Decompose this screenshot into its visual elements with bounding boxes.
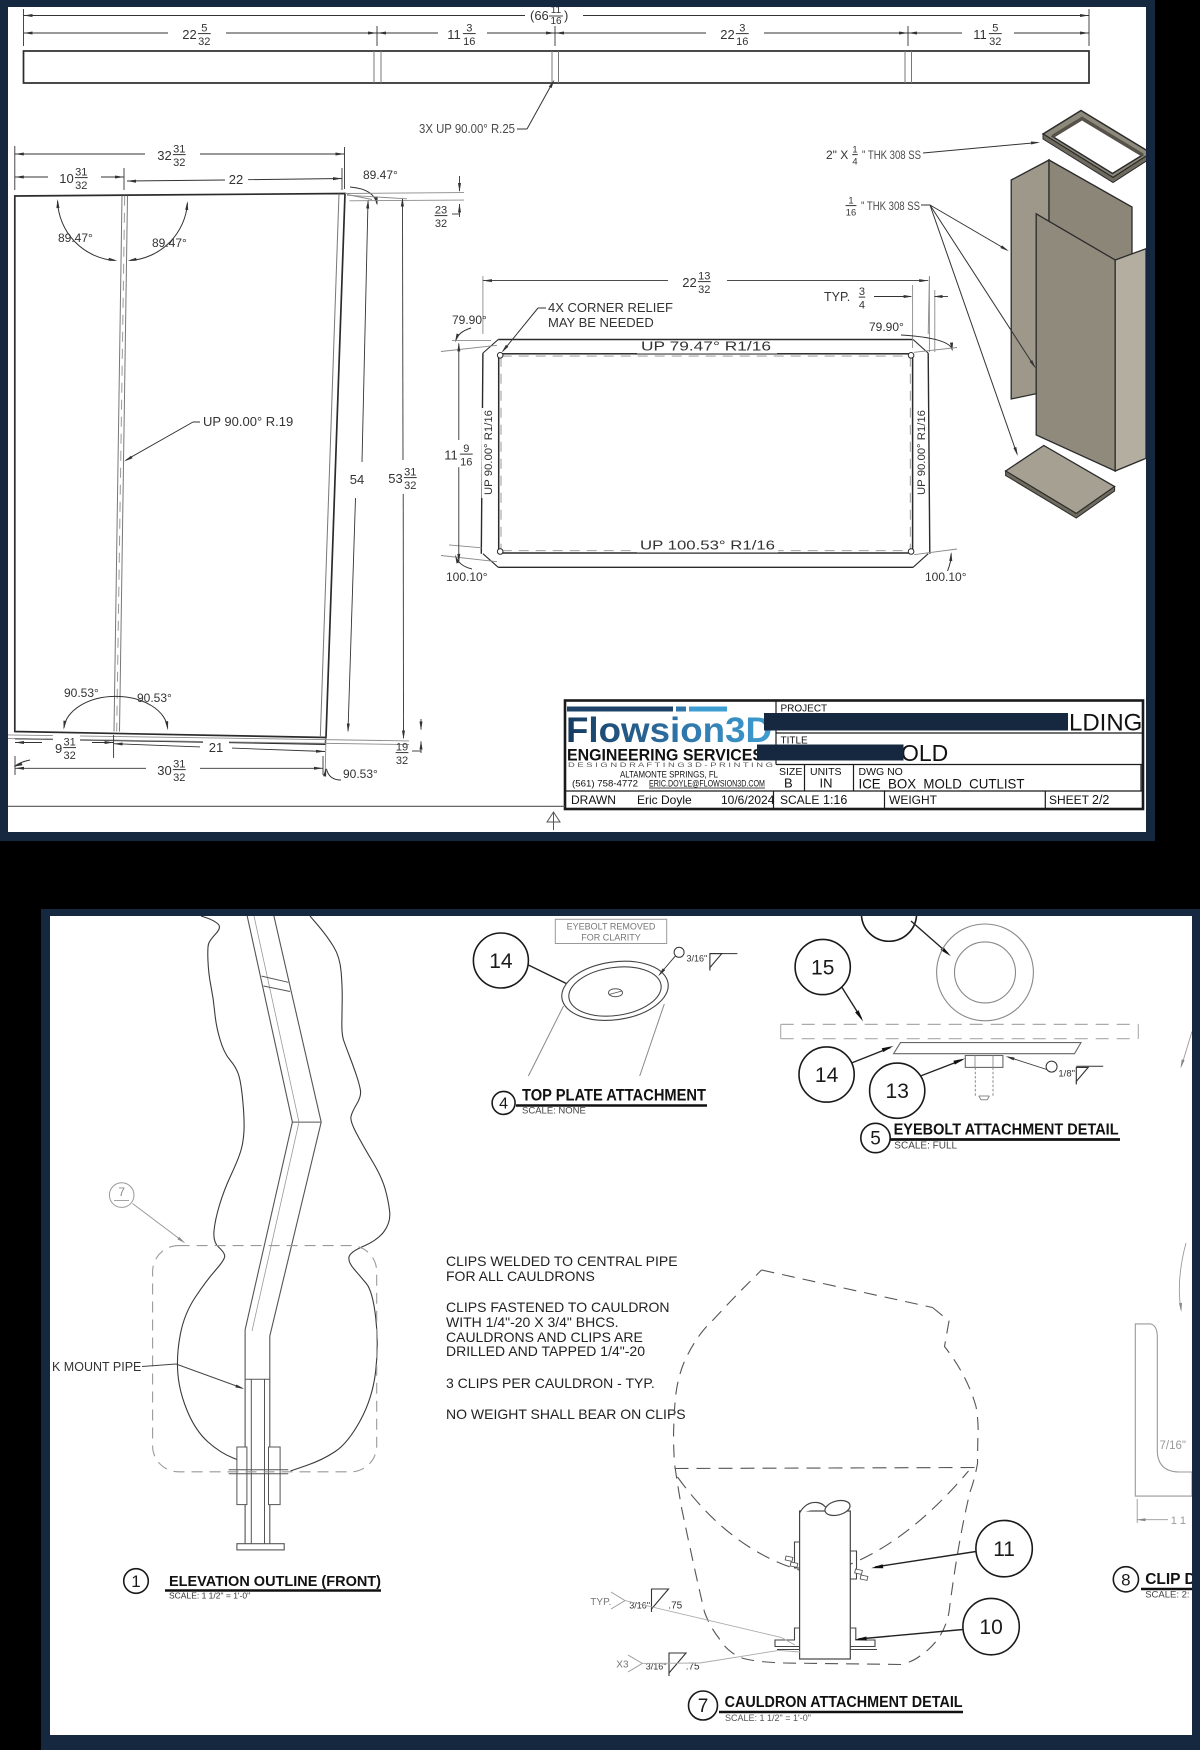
svg-text:31: 31 <box>404 467 416 479</box>
svg-text:16: 16 <box>550 16 562 27</box>
svg-text:3 CLIPS PER CAULDRON - TYP.: 3 CLIPS PER CAULDRON - TYP. <box>446 1375 655 1391</box>
svg-text:3: 3 <box>466 23 472 35</box>
svg-text:TYP.: TYP. <box>590 1597 611 1608</box>
svg-text:13: 13 <box>698 271 710 283</box>
svg-text:32: 32 <box>404 480 416 492</box>
svg-text:IN: IN <box>820 776 833 791</box>
svg-text:5: 5 <box>992 23 998 35</box>
svg-text:22: 22 <box>720 27 734 42</box>
svg-text:90.53°: 90.53° <box>343 767 378 781</box>
svg-text:14: 14 <box>815 1064 839 1087</box>
svg-text:31: 31 <box>63 737 75 749</box>
svg-text:TOP PLATE ATTACHMENT: TOP PLATE ATTACHMENT <box>522 1087 706 1105</box>
svg-text:11: 11 <box>973 27 987 42</box>
svg-text:): ) <box>564 8 568 23</box>
svg-text:UP 100.53° R1/16: UP 100.53° R1/16 <box>640 539 775 553</box>
svg-text:22: 22 <box>229 172 243 187</box>
svg-text:79.90°: 79.90° <box>869 320 904 334</box>
svg-text:11: 11 <box>447 27 461 42</box>
svg-text:CAULDRON ATTACHMENT DETAIL: CAULDRON ATTACHMENT DETAIL <box>725 1694 963 1711</box>
svg-text:4: 4 <box>852 156 857 166</box>
svg-text:10: 10 <box>979 1616 1002 1639</box>
svg-text:4: 4 <box>859 300 865 312</box>
svg-text:30: 30 <box>157 763 171 778</box>
svg-text:UP 79.47° R1/16: UP 79.47° R1/16 <box>641 340 771 354</box>
svg-text:23: 23 <box>435 205 447 217</box>
svg-text:K MOUNT PIPE: K MOUNT PIPE <box>52 1360 141 1374</box>
svg-text:13: 13 <box>886 1080 909 1103</box>
svg-text:89.47°: 89.47° <box>363 168 398 182</box>
svg-text:B: B <box>784 776 793 791</box>
svg-text:2/2: 2/2 <box>1092 793 1109 807</box>
svg-text:32: 32 <box>198 36 210 48</box>
svg-text:CLIP D: CLIP D <box>1145 1571 1196 1588</box>
svg-text:1 1: 1 1 <box>1171 1515 1186 1527</box>
svg-text:79.90°: 79.90° <box>452 313 487 327</box>
svg-text:32: 32 <box>989 36 1001 48</box>
svg-text:DRAWN: DRAWN <box>571 793 616 807</box>
svg-text:7: 7 <box>698 1696 709 1717</box>
svg-text:14: 14 <box>489 950 513 973</box>
svg-text:SCALE: FULL: SCALE: FULL <box>894 1141 957 1152</box>
svg-text:5: 5 <box>870 1129 881 1150</box>
svg-text:19: 19 <box>396 742 408 754</box>
svg-text:UP 90.00° R1/16: UP 90.00° R1/16 <box>483 410 495 495</box>
svg-text:32: 32 <box>75 180 87 192</box>
svg-text:32: 32 <box>173 157 185 169</box>
svg-text:WEIGHT: WEIGHT <box>889 793 938 807</box>
svg-text:22: 22 <box>682 275 696 290</box>
svg-text:NO WEIGHT SHALL BEAR ON CLIPS: NO WEIGHT SHALL BEAR ON CLIPS <box>446 1406 686 1422</box>
svg-text:3: 3 <box>739 23 745 35</box>
svg-text:OLD: OLD <box>901 740 948 766</box>
svg-text:Eric Doyle: Eric Doyle <box>637 793 692 807</box>
svg-text:15: 15 <box>811 956 834 979</box>
svg-text:" THK 308 SS: " THK 308 SS <box>861 199 920 213</box>
svg-text:X3: X3 <box>616 1660 629 1671</box>
svg-text:32: 32 <box>698 284 710 296</box>
svg-text:32: 32 <box>173 772 185 784</box>
svg-text:WITH 1/4"-20 X 3/4" BHCS.: WITH 1/4"-20 X 3/4" BHCS. <box>446 1314 619 1330</box>
svg-text:SHEET: SHEET <box>1049 793 1090 807</box>
svg-text:MAY BE NEEDED: MAY BE NEEDED <box>548 315 654 330</box>
svg-text:5: 5 <box>201 23 207 35</box>
svg-text:54: 54 <box>350 472 364 487</box>
svg-text:53: 53 <box>388 471 402 486</box>
svg-text:4X CORNER RELIEF: 4X CORNER RELIEF <box>548 300 673 315</box>
svg-text:SCALE: SCALE <box>780 793 819 807</box>
svg-text:1: 1 <box>848 196 853 206</box>
svg-text:" THK 308 SS: " THK 308 SS <box>862 148 921 162</box>
svg-text:32: 32 <box>396 755 408 767</box>
svg-text:1:16: 1:16 <box>823 793 847 807</box>
svg-text:ICE_BOX_MOLD_CUTLIST: ICE_BOX_MOLD_CUTLIST <box>859 776 1025 792</box>
svg-text:SCALE: NONE: SCALE: NONE <box>522 1106 586 1117</box>
svg-text:32: 32 <box>435 218 447 230</box>
svg-text:3/16": 3/16" <box>687 954 708 964</box>
svg-text:16: 16 <box>736 36 748 48</box>
svg-text:9: 9 <box>463 443 469 455</box>
svg-text:.75: .75 <box>668 1601 682 1612</box>
svg-text:1: 1 <box>852 145 857 155</box>
svg-text:32: 32 <box>63 750 75 762</box>
svg-text:SCALE: 2:: SCALE: 2: <box>1145 1590 1189 1601</box>
svg-text:TYP.: TYP. <box>824 290 850 304</box>
svg-text:100.10°: 100.10° <box>925 570 967 584</box>
svg-text:EYEBOLT REMOVED: EYEBOLT REMOVED <box>567 922 656 932</box>
svg-text:32: 32 <box>157 148 171 163</box>
svg-text:16: 16 <box>460 457 472 469</box>
svg-text:7: 7 <box>118 1185 125 1199</box>
svg-text:7/16": 7/16" <box>1160 1440 1186 1452</box>
svg-text:10: 10 <box>59 171 73 186</box>
svg-text:22: 22 <box>182 27 196 42</box>
svg-text:PROJECT: PROJECT <box>781 704 828 715</box>
svg-text:3: 3 <box>859 286 865 298</box>
svg-text:FOR CLARITY: FOR CLARITY <box>581 933 641 943</box>
svg-text:10/6/2024: 10/6/2024 <box>721 793 775 807</box>
svg-text:31: 31 <box>173 759 185 771</box>
svg-text:11: 11 <box>444 447 458 462</box>
svg-text:D E S I G N D R A F T I N G: D E S I G N D R A F T I N G 3 D - P R I … <box>568 762 773 769</box>
svg-text:16: 16 <box>463 36 475 48</box>
svg-text:(561) 758-4772: (561) 758-4772 <box>572 779 638 790</box>
svg-text:FOR ALL CAULDRONS: FOR ALL CAULDRONS <box>446 1268 595 1284</box>
svg-text:1/8": 1/8" <box>1058 1069 1075 1080</box>
svg-text:100.10°: 100.10° <box>446 570 488 584</box>
svg-text:16: 16 <box>846 207 856 217</box>
svg-text:1: 1 <box>131 1572 140 1591</box>
svg-text:8: 8 <box>1121 1570 1130 1589</box>
svg-text:4: 4 <box>499 1096 508 1113</box>
svg-text:21: 21 <box>209 740 223 755</box>
svg-text:90.53°: 90.53° <box>137 691 172 705</box>
svg-text:31: 31 <box>75 167 87 179</box>
svg-text:LDING: LDING <box>1069 710 1142 737</box>
svg-text:EYEBOLT ATTACHMENT DETAIL: EYEBOLT ATTACHMENT DETAIL <box>894 1122 1119 1139</box>
svg-text:CLIPS FASTENED TO CAULDRON: CLIPS FASTENED TO CAULDRON <box>446 1299 670 1315</box>
svg-text:UP 90.00° R.19: UP 90.00° R.19 <box>203 414 293 429</box>
svg-text:CLIPS WELDED TO CENTRAL PIPE: CLIPS WELDED TO CENTRAL PIPE <box>446 1253 678 1269</box>
svg-text:UP 90.00° R1/16: UP 90.00° R1/16 <box>916 410 928 495</box>
svg-text:2" X: 2" X <box>826 148 848 162</box>
svg-text:90.53°: 90.53° <box>64 686 99 700</box>
svg-text:31: 31 <box>173 144 185 156</box>
svg-text:9: 9 <box>55 741 62 756</box>
svg-text:11: 11 <box>993 1538 1015 1561</box>
svg-text:3X UP 90.00° R.25: 3X UP 90.00° R.25 <box>419 121 515 136</box>
svg-text:DRILLED AND TAPPED 1/4"-20: DRILLED AND TAPPED 1/4"-20 <box>446 1343 645 1359</box>
svg-text:Flowsion3D: Flowsion3D <box>566 711 772 750</box>
svg-text:SCALE: 1 1/2" = 1'-0": SCALE: 1 1/2" = 1'-0" <box>725 1713 811 1723</box>
svg-text:(66: (66 <box>530 8 549 23</box>
svg-text:SCALE: 1 1/2" = 1'-0": SCALE: 1 1/2" = 1'-0" <box>169 1591 250 1601</box>
svg-text:ELEVATION OUTLINE (FRONT): ELEVATION OUTLINE (FRONT) <box>169 1574 381 1590</box>
